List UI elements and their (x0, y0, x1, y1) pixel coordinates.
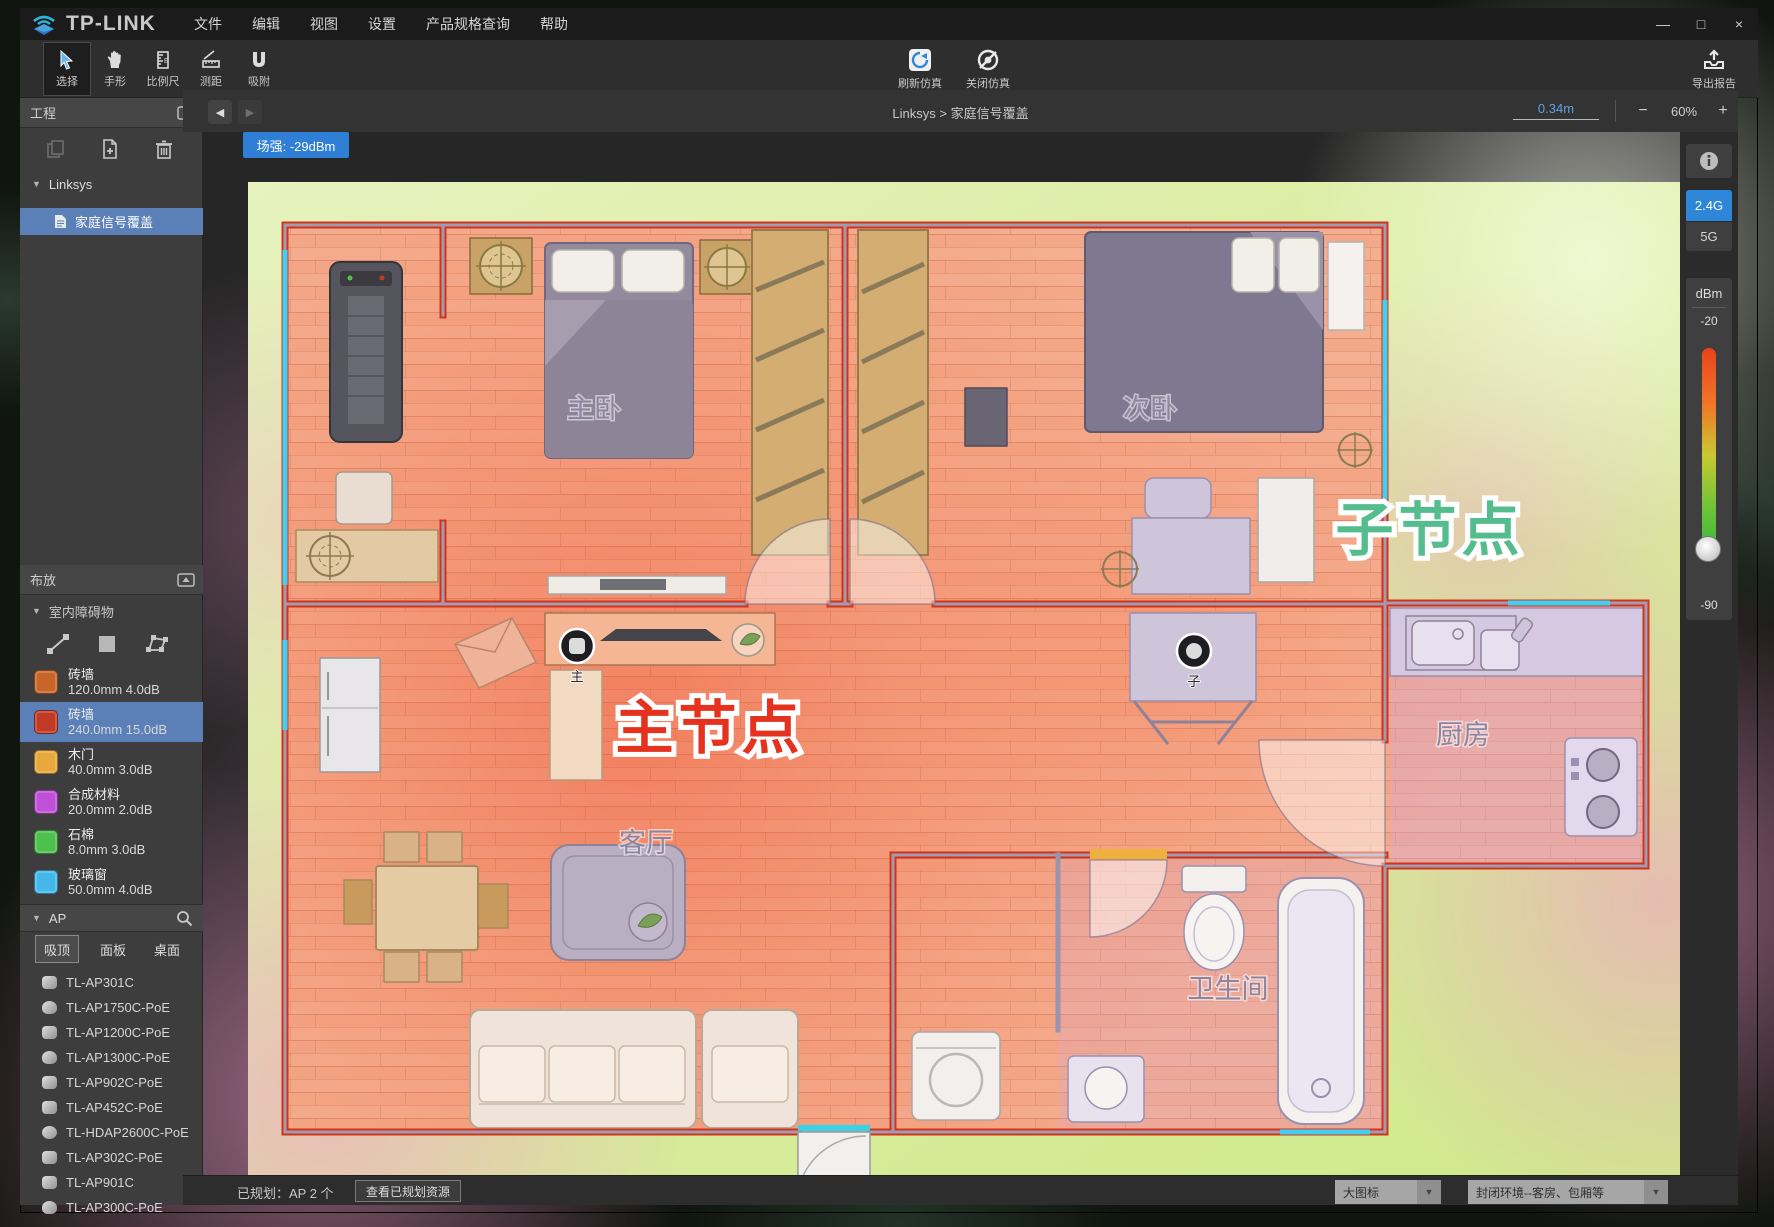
canvas-top-bar: ◀ ▶ Linksys > 家庭信号覆盖 0.34m − 60% + (183, 90, 1738, 132)
kitchen-stove (1565, 738, 1637, 836)
coffee-table (551, 845, 685, 960)
material-spec: 8.0mm 3.0dB (68, 842, 145, 857)
bathroom-door-leaf (1090, 849, 1167, 860)
ap-model-label: TL-AP302C-PoE (66, 1150, 163, 1165)
tool-scale-ruler-label: 比例尺 (147, 73, 180, 89)
close-simulation-label: 关闭仿真 (966, 75, 1010, 91)
title-bar: TP-LINK 文件 编辑 视图 设置 产品规格查询 帮助 — □ × (20, 8, 1758, 40)
document-icon (54, 214, 67, 229)
ap-model-label: TL-AP300C-PoE (66, 1200, 163, 1215)
environment-value: 封闭环境--客房、包厢等 (1468, 1184, 1644, 1201)
menu-bar: 文件 编辑 视图 设置 产品规格查询 帮助 (194, 14, 568, 34)
material-swatch (34, 870, 58, 894)
menu-help[interactable]: 帮助 (540, 14, 568, 34)
stool (336, 472, 392, 524)
sofa-three-seat (470, 1010, 696, 1128)
room-label-living: 客厅 (619, 828, 673, 858)
ap-model-label: TL-AP301C (66, 975, 134, 990)
entry-door (798, 1128, 870, 1178)
search-icon[interactable] (176, 910, 193, 927)
refresh-simulation-label: 刷新仿真 (898, 75, 942, 91)
tool-hand[interactable]: 手形 (92, 43, 138, 95)
material-name: 合成材料 (68, 787, 153, 802)
ap-tabs: 吸顶 面板 桌面 (20, 936, 203, 964)
tool-select[interactable]: 选择 (44, 43, 90, 95)
menu-file[interactable]: 文件 (194, 14, 222, 34)
info-icon (1699, 151, 1719, 171)
menu-edit[interactable]: 编辑 (252, 14, 280, 34)
ap-section-header[interactable]: ▼ AP (20, 904, 203, 932)
export-report-icon (1702, 48, 1726, 72)
export-report-button[interactable]: 导出报告 (1682, 43, 1746, 95)
minimize-button[interactable]: — (1644, 11, 1682, 37)
ap-model-label: TL-AP901C (66, 1175, 134, 1190)
ap-main-tag: 主 (570, 669, 583, 684)
chevron-down-icon: ▼ (1644, 1180, 1668, 1204)
wardrobe-second (858, 230, 928, 555)
scale-ruler-icon: E (153, 50, 173, 70)
material-brick-120[interactable]: 砖墙 120.0mm 4.0dB (20, 662, 203, 702)
material-spec: 240.0mm 15.0dB (68, 722, 167, 737)
tab-panel[interactable]: 面板 (92, 936, 134, 962)
icon-size-value: 大图标 (1335, 1184, 1417, 1201)
ap-caret-icon: ▼ (32, 913, 41, 923)
ap-model-item[interactable]: TL-AP301C (20, 970, 203, 995)
sofa-single (702, 1010, 798, 1128)
project-tree-root[interactable]: ▼ Linksys (20, 172, 203, 196)
measure-icon (201, 50, 221, 70)
hall-cabinet (550, 670, 602, 780)
master-bed (545, 243, 693, 458)
divider (1692, 307, 1726, 308)
icon-size-dropdown[interactable]: 大图标 ▼ (1335, 1180, 1441, 1204)
project-root-label: Linksys (49, 177, 92, 192)
info-button[interactable] (1686, 144, 1732, 178)
magnet-icon (249, 50, 269, 70)
ap-model-label: TL-AP902C-PoE (66, 1075, 163, 1090)
floorplan-canvas[interactable]: 主卧 次卧 厨房 客厅 卫生间 主 子 主节点 子节点 (0, 0, 1774, 1227)
material-name: 玻璃窗 (68, 867, 153, 882)
refresh-sim-icon (908, 48, 932, 72)
material-swatch (34, 830, 58, 854)
copy-project-icon[interactable] (46, 139, 66, 159)
menu-product-specs[interactable]: 产品规格查询 (426, 14, 510, 34)
material-swatch (34, 750, 58, 774)
add-project-icon[interactable] (100, 139, 120, 159)
ceiling-ap-icon (42, 1151, 57, 1164)
material-brick-240-selected[interactable]: 砖墙 240.0mm 15.0dB (20, 702, 203, 742)
gauge-gradient-bar (1702, 348, 1716, 554)
material-spec: 120.0mm 4.0dB (68, 682, 160, 697)
tool-select-label: 选择 (56, 73, 78, 89)
material-swatch (34, 670, 58, 694)
material-name: 石棉 (68, 827, 145, 842)
nightstand-lamp-right (700, 240, 754, 294)
gauge-max: -20 (1686, 314, 1732, 328)
tool-scale-ruler[interactable]: E 比例尺 (140, 43, 186, 95)
obstacle-group-label: 室内障碍物 (49, 602, 114, 621)
ceiling-ap-icon (42, 1176, 57, 1189)
signal-gauge: dBm -20 -90 (1686, 278, 1732, 620)
maximize-button[interactable]: □ (1682, 11, 1720, 37)
material-wood-door[interactable]: 木门 40.0mm 3.0dB (20, 742, 203, 782)
material-synthetic[interactable]: 合成材料 20.0mm 2.0dB (20, 782, 203, 822)
ceiling-ap-icon (42, 976, 57, 989)
cursor-icon (57, 50, 77, 70)
wardrobe-master (752, 230, 828, 555)
tool-snap-label: 吸附 (248, 73, 270, 89)
planned-count: 已规划：AP 2 个 (237, 1183, 334, 1202)
tool-measure-label: 测距 (200, 73, 222, 89)
status-bar: 已规划：AP 2 个 查看已规划资源 大图标 ▼ 封闭环境--客房、包厢等 ▼ (183, 1175, 1738, 1205)
gauge-min: -90 (1686, 598, 1732, 612)
material-name: 砖墙 (68, 667, 160, 682)
menu-settings[interactable]: 设置 (368, 14, 396, 34)
nightstand-lamp-left (470, 238, 532, 294)
tool-snap[interactable]: 吸附 (236, 43, 282, 95)
room-label-second: 次卧 (1123, 394, 1177, 424)
material-swatch (34, 710, 58, 734)
dresser (296, 530, 438, 582)
ap-model-label: TL-AP1200C-PoE (66, 1025, 170, 1040)
project-panel-header: 工程 (20, 98, 203, 128)
sidebar: 工程 ▼ Linksys 家庭信号覆盖 布放 ▼ 室内障碍物 砖墙 120.0m… (20, 98, 203, 1205)
washing-machine (912, 1032, 1000, 1120)
environment-dropdown[interactable]: 封闭环境--客房、包厢等 ▼ (1468, 1180, 1668, 1204)
group-caret-icon: ▼ (32, 606, 41, 616)
standing-cabinet (1258, 478, 1314, 582)
close-simulation-button[interactable]: 关闭仿真 (956, 43, 1020, 95)
project-actions (20, 134, 203, 164)
brand: TP-LINK (20, 11, 170, 37)
material-spec: 50.0mm 4.0dB (68, 882, 153, 897)
ap-model-item[interactable]: TL-HDAP2600C-PoE (20, 1120, 203, 1145)
ap-model-label: TL-AP1300C-PoE (66, 1050, 170, 1065)
close-sim-icon (976, 48, 1000, 72)
refresh-simulation-button[interactable]: 刷新仿真 (888, 43, 952, 95)
main-node-label: 主节点 (615, 696, 804, 761)
ap-model-item[interactable]: TL-AP302C-PoE (20, 1145, 203, 1170)
ap-model-label: TL-AP1750C-PoE (66, 1000, 170, 1015)
gauge-unit: dBm (1686, 278, 1732, 301)
tab-ceiling[interactable]: 吸顶 (36, 936, 78, 962)
draw-line-icon[interactable] (46, 633, 70, 655)
zoom-level: 60% (1671, 104, 1697, 119)
ap-model-item[interactable]: TL-AP452C-PoE (20, 1095, 203, 1120)
ceiling-ap-icon (42, 1001, 57, 1014)
hand-icon (105, 50, 125, 70)
band-2g4-button[interactable]: 2.4G (1686, 190, 1732, 221)
project-item-selected[interactable]: 家庭信号覆盖 (20, 208, 203, 235)
material-spec: 20.0mm 2.0dB (68, 802, 153, 817)
menu-view[interactable]: 视图 (310, 14, 338, 34)
panel-collapse-icon[interactable] (177, 573, 195, 587)
tool-measure[interactable]: 测距 (188, 43, 234, 95)
room-label-master: 主卧 (567, 394, 621, 424)
placement-panel-title: 布放 (20, 570, 56, 589)
ceiling-ap-icon (42, 1126, 57, 1139)
material-spec: 40.0mm 3.0dB (68, 762, 153, 777)
ceiling-ap-icon (42, 1051, 57, 1064)
obstacle-group-row[interactable]: ▼ 室内障碍物 (20, 598, 203, 624)
chevron-down-icon: ▼ (1417, 1180, 1441, 1204)
tree-caret-icon: ▼ (32, 179, 41, 189)
close-button[interactable]: × (1720, 11, 1758, 37)
treadmill (330, 262, 402, 442)
placement-panel-header: 布放 (20, 565, 203, 595)
tplink-logo-icon (30, 11, 58, 37)
tab-desktop[interactable]: 桌面 (146, 936, 188, 962)
ap-child-tag: 子 (1187, 674, 1200, 689)
field-strength-badge: 场强: -29dBm (243, 132, 349, 158)
ap-model-item[interactable]: TL-AP901C (20, 1170, 203, 1195)
bathtub (1278, 878, 1364, 1124)
zoom-out-button[interactable]: − (1631, 100, 1655, 122)
kitchen-sink-counter (1390, 608, 1646, 676)
child-node-label: 子节点 (1335, 498, 1524, 563)
ap-model-item[interactable]: TL-AP902C-PoE (20, 1070, 203, 1095)
material-glass-window[interactable]: 玻璃窗 50.0mm 4.0dB (20, 862, 203, 902)
bedside-table (965, 388, 1007, 446)
breadcrumb: Linksys > 家庭信号覆盖 (183, 103, 1738, 122)
ceiling-ap-icon (42, 1201, 57, 1214)
ap-model-item[interactable]: TL-AP1200C-PoE (20, 1020, 203, 1045)
brand-name: TP-LINK (66, 12, 156, 36)
material-name: 砖墙 (68, 707, 167, 722)
material-asbestos[interactable]: 石棉 8.0mm 3.0dB (20, 822, 203, 862)
gauge-slider-knob[interactable] (1695, 536, 1721, 562)
draw-polygon-icon[interactable] (144, 633, 170, 655)
fridge (320, 658, 380, 772)
room-label-bathroom: 卫生间 (1188, 974, 1269, 1004)
ap-model-item[interactable]: TL-AP300C-PoE (20, 1195, 203, 1220)
toilet (1182, 866, 1246, 970)
material-name: 木门 (68, 747, 153, 762)
bedroom-tv-bench (548, 576, 726, 594)
svg-text:E: E (164, 58, 169, 65)
scale-indicator: 0.34m (1513, 101, 1599, 120)
ceiling-ap-icon (42, 1101, 57, 1114)
delete-project-icon[interactable] (154, 139, 174, 159)
view-planned-resources-button[interactable]: 查看已规划资源 (355, 1180, 461, 1202)
room-label-kitchen: 厨房 (1436, 720, 1490, 750)
ap-model-label: TL-AP452C-PoE (66, 1100, 163, 1115)
material-swatch (34, 790, 58, 814)
project-panel-title: 工程 (20, 103, 56, 122)
export-report-label: 导出报告 (1692, 75, 1736, 91)
ap-model-item[interactable]: TL-AP1300C-PoE (20, 1045, 203, 1070)
zoom-in-button[interactable]: + (1711, 100, 1735, 122)
draw-rect-icon[interactable] (96, 633, 118, 655)
ceiling-ap-icon (42, 1026, 57, 1039)
band-5g-button[interactable]: 5G (1686, 222, 1732, 251)
window-controls: — □ × (1644, 11, 1758, 37)
ap-section-title: AP (49, 911, 66, 926)
project-item-label: 家庭信号覆盖 (75, 212, 153, 231)
ceiling-ap-icon (42, 1076, 57, 1089)
tool-hand-label: 手形 (104, 73, 126, 89)
draw-tools (20, 626, 203, 662)
ap-model-item[interactable]: TL-AP1750C-PoE (20, 995, 203, 1020)
right-panel: 2.4G 5G dBm -20 -90 (1680, 132, 1738, 1175)
bathroom-sink (1068, 1056, 1144, 1122)
divider (1615, 100, 1616, 122)
ap-model-label: TL-HDAP2600C-PoE (66, 1125, 189, 1140)
